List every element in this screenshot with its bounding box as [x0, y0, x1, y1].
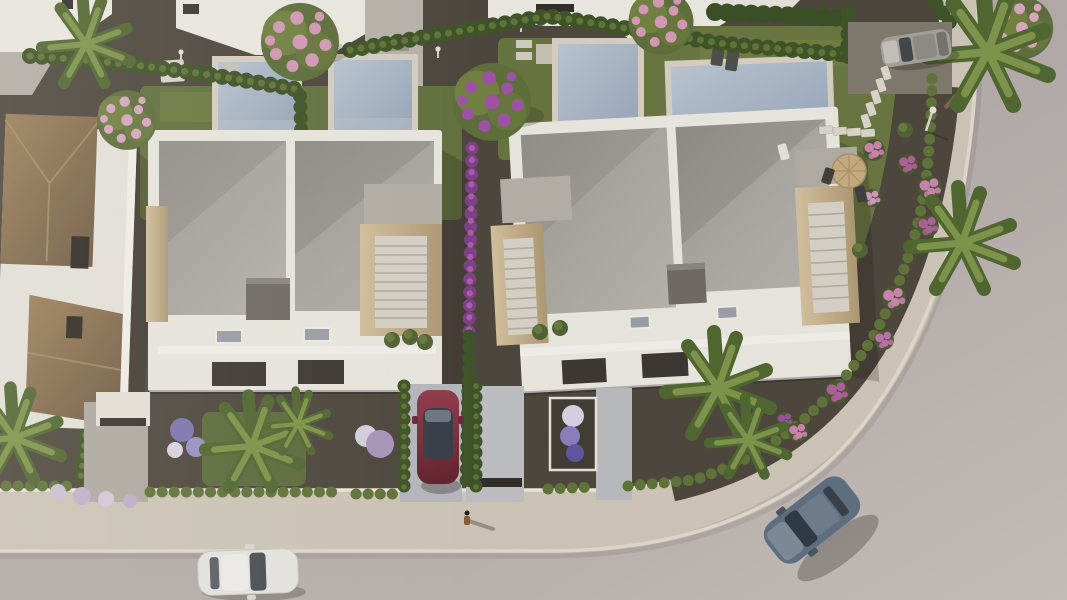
- stone-cladding-left: [146, 206, 168, 322]
- side-mirror: [247, 595, 256, 600]
- windshield: [249, 552, 266, 591]
- white-car-on-road: [197, 542, 306, 600]
- violet-flowers: [566, 444, 584, 462]
- side-mirror: [245, 544, 254, 549]
- skylight: [216, 330, 242, 343]
- villa-b: [485, 105, 879, 402]
- parasol-ribs: [832, 154, 866, 188]
- rooftop-box: [246, 278, 290, 320]
- pool-2: [328, 54, 418, 142]
- skylight: [717, 306, 738, 319]
- window-opening: [70, 236, 89, 269]
- pedestrian-body: [464, 516, 470, 525]
- aerial-render: [0, 0, 1067, 600]
- window-opening: [183, 4, 199, 14]
- pink-flowering-tree: [261, 3, 339, 81]
- upper-terrace-pad: [364, 184, 442, 226]
- porch-recess: [641, 352, 688, 378]
- side-mirror: [458, 416, 464, 424]
- scene-canvas: [0, 0, 1067, 600]
- staircase-steps: [808, 201, 850, 313]
- rooftop-box-edge: [246, 278, 290, 284]
- skylight: [304, 328, 330, 341]
- white-flowers: [562, 405, 584, 427]
- hedge-boundary-lower: [466, 336, 469, 486]
- deck-pad: [516, 52, 532, 60]
- white-flowers: [167, 442, 183, 458]
- skylight: [629, 316, 650, 329]
- lavender-flower-ball: [366, 430, 394, 458]
- car-roof: [912, 33, 937, 60]
- purple-flowers: [560, 426, 580, 446]
- blue-flowers: [170, 418, 194, 442]
- porch-recess: [562, 358, 607, 384]
- window-opening: [66, 316, 83, 339]
- deck-pad: [516, 40, 532, 48]
- pink-flowering-tree: [97, 90, 157, 150]
- porch-recess: [212, 362, 266, 386]
- windshield: [425, 410, 451, 422]
- pedestrian-head: [465, 511, 470, 516]
- hedge-row: [715, 12, 845, 18]
- porch-recess: [298, 360, 344, 384]
- deck-pad: [536, 44, 552, 64]
- side-mirror: [412, 416, 418, 424]
- bougainvillea-tree: [453, 63, 531, 141]
- upper-terrace-pad: [500, 176, 572, 224]
- garage-door-shadow: [100, 418, 146, 426]
- villa-a: [146, 130, 470, 398]
- staircase-steps: [503, 238, 538, 335]
- car-roof: [221, 554, 248, 591]
- rear-window: [209, 557, 219, 589]
- red-car-parked: [412, 390, 464, 494]
